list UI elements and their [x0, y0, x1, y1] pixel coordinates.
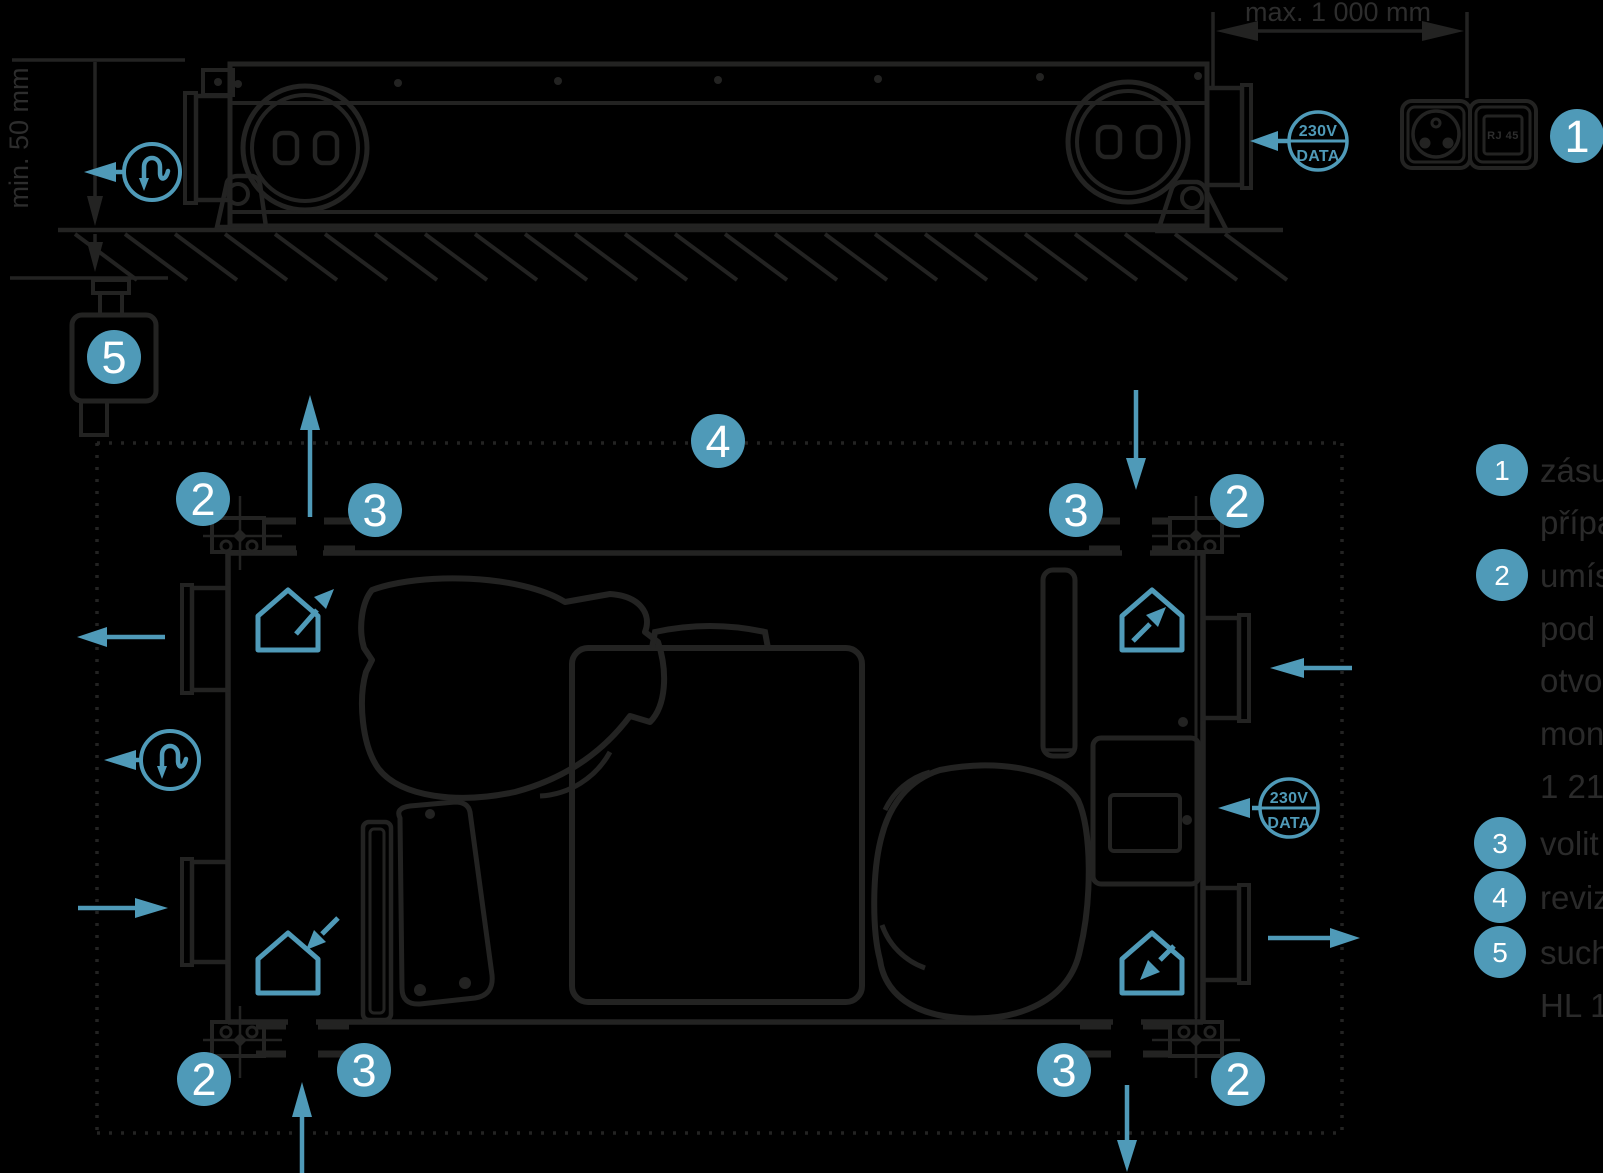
heat-exchanger	[572, 626, 862, 1002]
wedge-bracket	[399, 802, 492, 1004]
legend-text: pod	[1540, 610, 1595, 647]
control-box	[1093, 717, 1199, 884]
svg-text:3: 3	[362, 485, 387, 536]
rail-screws	[234, 72, 1202, 88]
dry-siphon-device: 5	[72, 280, 156, 435]
wall-socket-icon	[1402, 101, 1470, 168]
siphon-arrow-head	[84, 162, 116, 182]
badge-line1: 230V	[1270, 790, 1309, 807]
arrow-down-top-right	[1126, 390, 1146, 490]
unit-side-outline	[203, 64, 1207, 226]
callout-4-inspection: 4	[691, 414, 745, 468]
callout-2-bottom-left: 2	[177, 1052, 231, 1106]
side-view: min. 50 mm max. 1 000 mm 230V DATA	[4, 0, 1603, 280]
min-clearance-label: min. 50 mm	[4, 67, 34, 208]
callout-1-outlet: 1	[1550, 109, 1603, 163]
legend-text: 1 21	[1540, 768, 1603, 805]
callout-2-top-left: 2	[176, 472, 230, 526]
power-data-badge-plan: 230V DATA	[1218, 779, 1318, 837]
legend-number: 2	[1494, 560, 1510, 591]
svg-text:2: 2	[1224, 476, 1249, 527]
legend-item-1: 1 zásu přípa	[1476, 444, 1603, 541]
arrow-down-bottom-right	[1117, 1085, 1137, 1172]
legend-item-5: 5 such HL 1	[1474, 926, 1603, 1024]
siphon-arrow-head-plan	[104, 750, 136, 770]
right-port-circle	[1068, 82, 1188, 202]
badge-arrow-head	[1250, 131, 1278, 151]
legend-item-4: 4 reviz	[1474, 871, 1603, 923]
arrow-right-lower-right	[1268, 928, 1360, 948]
arrow-left-upper-left	[77, 627, 165, 647]
legend-number: 1	[1494, 455, 1510, 486]
legend-text: přípa	[1540, 504, 1603, 541]
callout-2-bottom-right: 2	[1211, 1052, 1265, 1106]
right-duct-stub	[1207, 85, 1251, 188]
legend-text: such	[1540, 934, 1603, 971]
rj45-label: RJ 45	[1487, 130, 1519, 142]
house-exhaust-icon-top-left	[258, 589, 334, 650]
callout-2-top-right: 2	[1210, 474, 1264, 528]
svg-text:2: 2	[1225, 1054, 1250, 1105]
legend: 1 zásu přípa 2 umís pod otvo mon 1 21 3 …	[1474, 444, 1603, 1024]
svg-text:2: 2	[191, 1054, 216, 1105]
floor-line	[58, 230, 1287, 280]
legend-text: umís	[1540, 557, 1603, 594]
svg-text:4: 4	[705, 416, 730, 467]
legend-text: zásu	[1540, 452, 1603, 489]
svg-text:3: 3	[1051, 1045, 1076, 1096]
fan-scroll-left	[361, 578, 664, 797]
plan-view: 230V DATA	[77, 390, 1360, 1173]
legend-number: 4	[1492, 882, 1508, 913]
rj45-socket-icon: RJ 45	[1470, 101, 1536, 168]
legend-text: volit	[1540, 825, 1599, 862]
arrow-left-upper-right	[1270, 658, 1352, 678]
arrow-up-top-left	[300, 395, 320, 517]
badge-line1: 230V	[1299, 123, 1338, 140]
installation-diagram-page: min. 50 mm max. 1 000 mm 230V DATA	[0, 0, 1603, 1173]
callout-5-siphon: 5	[87, 330, 141, 384]
svg-text:3: 3	[1063, 485, 1088, 536]
legend-text: otvo	[1540, 662, 1602, 699]
legend-text: HL 1	[1540, 987, 1603, 1024]
legend-number: 5	[1492, 937, 1508, 968]
filter-strip-left	[363, 822, 391, 1020]
plan-duct-stubs	[182, 585, 1249, 983]
callout-5-number: 5	[101, 332, 126, 383]
legend-text: reviz	[1540, 879, 1603, 916]
legend-item-3: 3 volit	[1474, 817, 1599, 869]
floor-hatching	[75, 234, 1287, 280]
callout-3-top-left: 3	[348, 483, 402, 537]
callout-3-bottom-left: 3	[337, 1043, 391, 1097]
legend-number: 3	[1492, 828, 1508, 859]
max-width-label: max. 1 000 mm	[1245, 0, 1431, 27]
svg-text:3: 3	[351, 1045, 376, 1096]
badge-line2: DATA	[1296, 148, 1339, 165]
house-supply-icon-top-right	[1122, 590, 1182, 650]
badge-line2: DATA	[1267, 815, 1310, 832]
condensate-siphon-icon-plan	[104, 731, 199, 789]
svg-text:2: 2	[190, 474, 215, 525]
filter-strip-right	[1043, 570, 1075, 756]
arrow-right-lower-left	[78, 898, 168, 918]
callout-3-bottom-right: 3	[1037, 1043, 1091, 1097]
left-duct-stub	[185, 93, 230, 203]
fan-scroll-right	[874, 765, 1089, 1018]
callout-3-top-right: 3	[1049, 483, 1103, 537]
power-data-badge-side: 230V DATA	[1250, 112, 1347, 170]
installation-diagram: min. 50 mm max. 1 000 mm 230V DATA	[0, 0, 1603, 1173]
badge-arrow-head-plan	[1218, 798, 1250, 818]
condensate-siphon-icon-side	[84, 144, 180, 200]
house-supply-icon-bottom-left	[258, 918, 338, 993]
legend-text: mon	[1540, 715, 1603, 752]
legend-item-2: 2 umís pod otvo mon 1 21	[1476, 549, 1603, 805]
callout-1-number: 1	[1564, 111, 1589, 162]
house-extract-icon-bottom-right	[1122, 933, 1182, 993]
arrow-up-bottom-left	[292, 1082, 312, 1173]
